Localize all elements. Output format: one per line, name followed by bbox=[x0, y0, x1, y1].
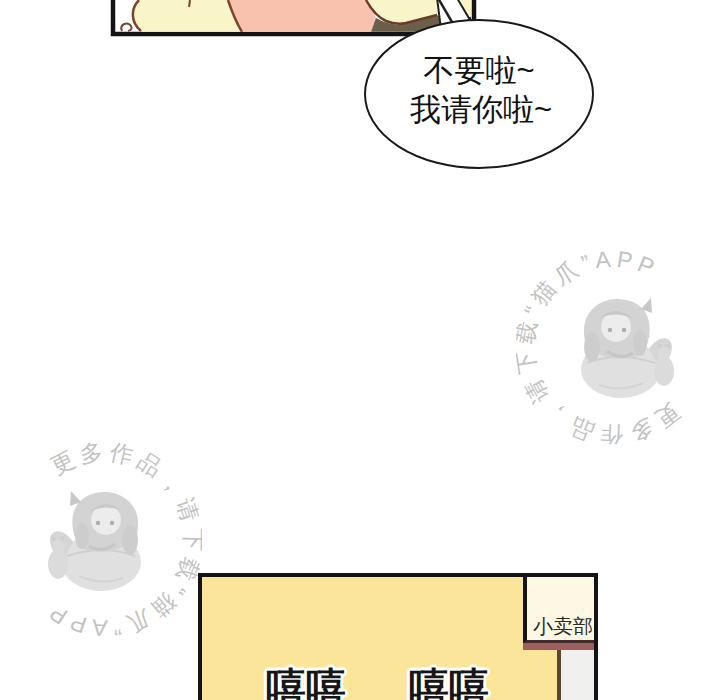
catgirl-mascot bbox=[48, 491, 141, 591]
watermark-left: 更多作品，请下载“猫爪”APP bbox=[8, 443, 202, 637]
shop-comic-panel: 小卖部 嘻嘻 嘻嘻 bbox=[198, 573, 598, 700]
catgirl-mascot bbox=[581, 298, 674, 398]
shop-door-column bbox=[557, 650, 594, 700]
watermark-arc-text: 更多作品，请下载“猫爪”APP bbox=[41, 443, 202, 637]
top-comic-panel: 不要啦~ 我请你啦~ bbox=[0, 0, 720, 180]
character-shirt bbox=[228, 0, 380, 32]
watermark-right: 更多作品，请下载“猫爪”APP bbox=[516, 250, 710, 444]
hand-crease bbox=[189, 0, 190, 7]
bubble-text-line1: 不要啦~ bbox=[423, 53, 534, 88]
shop-awning-stripe bbox=[523, 643, 594, 650]
character-hand bbox=[133, 0, 240, 32]
bubble-text-line2: 我请你啦~ bbox=[410, 92, 552, 127]
shop-sign-label: 小卖部 bbox=[533, 616, 594, 640]
comic-page: 不要啦~ 我请你啦~ 更多作品，请下载“猫爪”APP 更多作品，请下载“猫爪”A… bbox=[0, 0, 720, 700]
shop-sign: 小卖部 bbox=[523, 577, 594, 643]
panel-artwork bbox=[121, 0, 471, 32]
watermark-arc-text: 更多作品，请下载“猫爪”APP bbox=[516, 250, 685, 444]
giggle-sfx-text: 嘻嘻 bbox=[409, 665, 489, 700]
giggle-sfx-text: 嘻嘻 bbox=[266, 665, 346, 700]
